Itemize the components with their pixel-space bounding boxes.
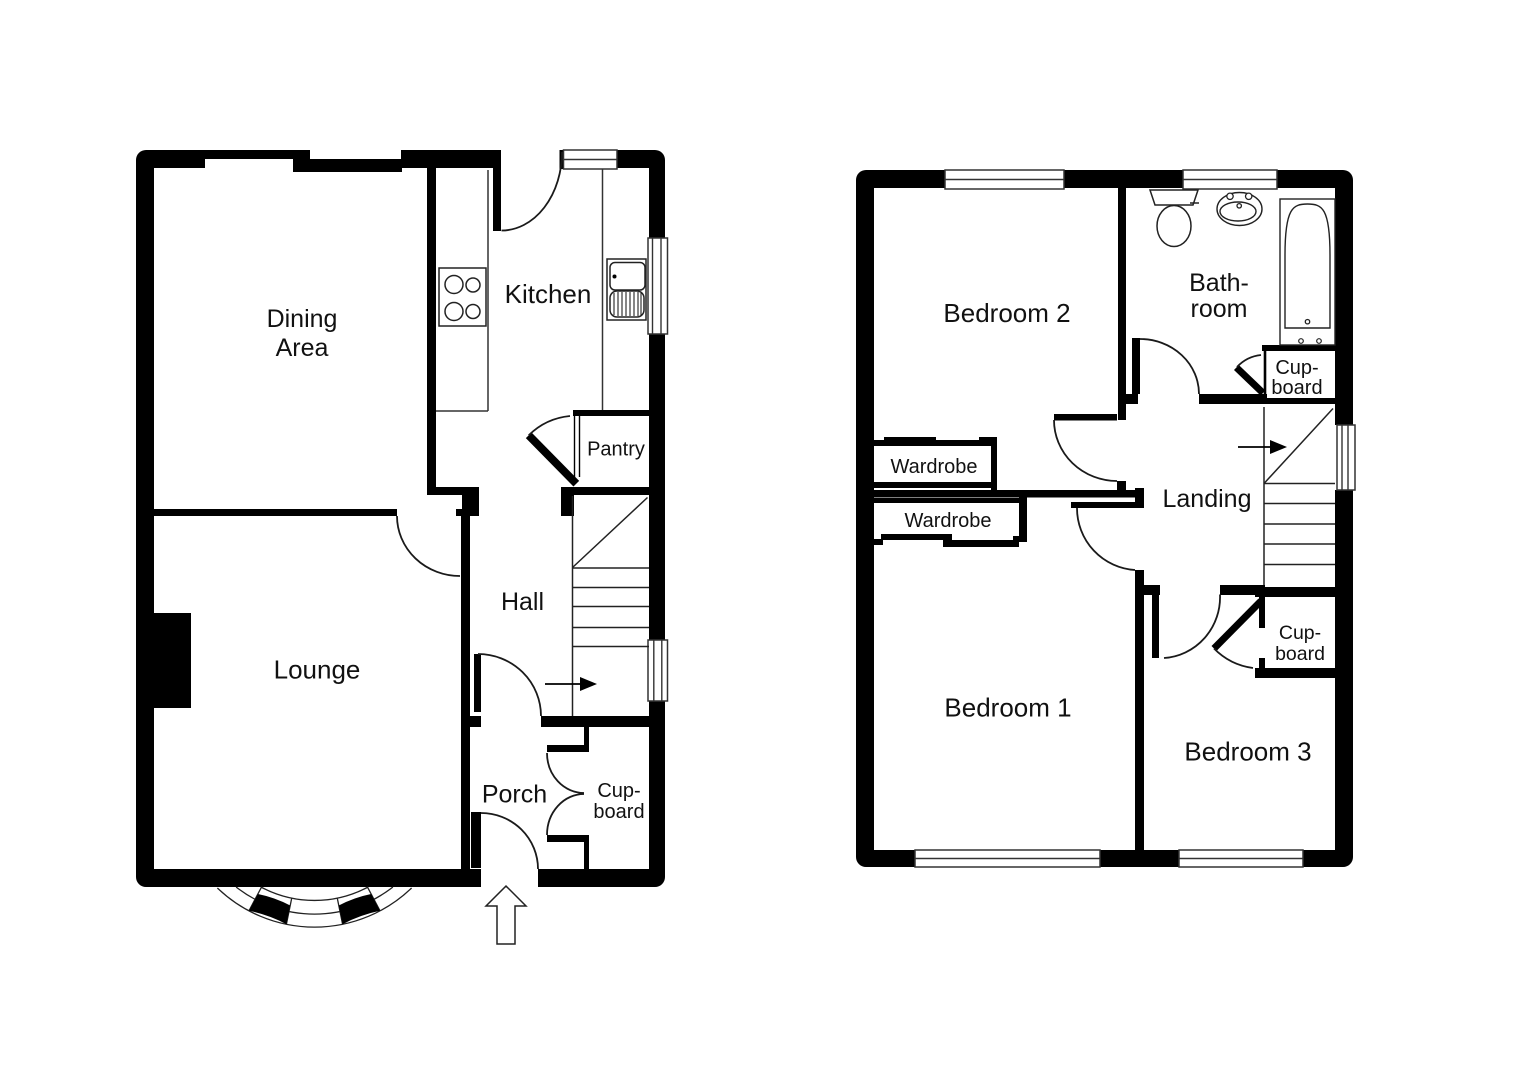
svg-text:Kitchen: Kitchen <box>505 279 592 309</box>
svg-text:Bath-: Bath- <box>1189 269 1249 297</box>
svg-text:Landing: Landing <box>1163 485 1252 513</box>
svg-text:Bedroom 1: Bedroom 1 <box>944 693 1071 723</box>
svg-text:Area: Area <box>276 334 329 362</box>
svg-text:Pantry: Pantry <box>587 439 645 461</box>
svg-text:Wardrobe: Wardrobe <box>904 510 991 532</box>
svg-text:Lounge: Lounge <box>274 655 361 685</box>
svg-text:Cup-: Cup- <box>597 780 640 802</box>
svg-text:Cup-: Cup- <box>1279 622 1321 644</box>
svg-text:Bedroom 3: Bedroom 3 <box>1184 737 1311 767</box>
svg-text:board: board <box>1271 377 1322 399</box>
svg-text:board: board <box>1275 643 1325 665</box>
svg-text:Porch: Porch <box>482 781 547 809</box>
svg-text:room: room <box>1191 295 1248 323</box>
svg-text:Wardrobe: Wardrobe <box>890 456 977 478</box>
svg-text:Bedroom 2: Bedroom 2 <box>943 298 1070 328</box>
svg-text:Hall: Hall <box>501 588 544 616</box>
svg-text:Cup-: Cup- <box>1275 357 1318 379</box>
svg-text:board: board <box>593 801 644 823</box>
svg-text:Dining: Dining <box>267 305 338 333</box>
